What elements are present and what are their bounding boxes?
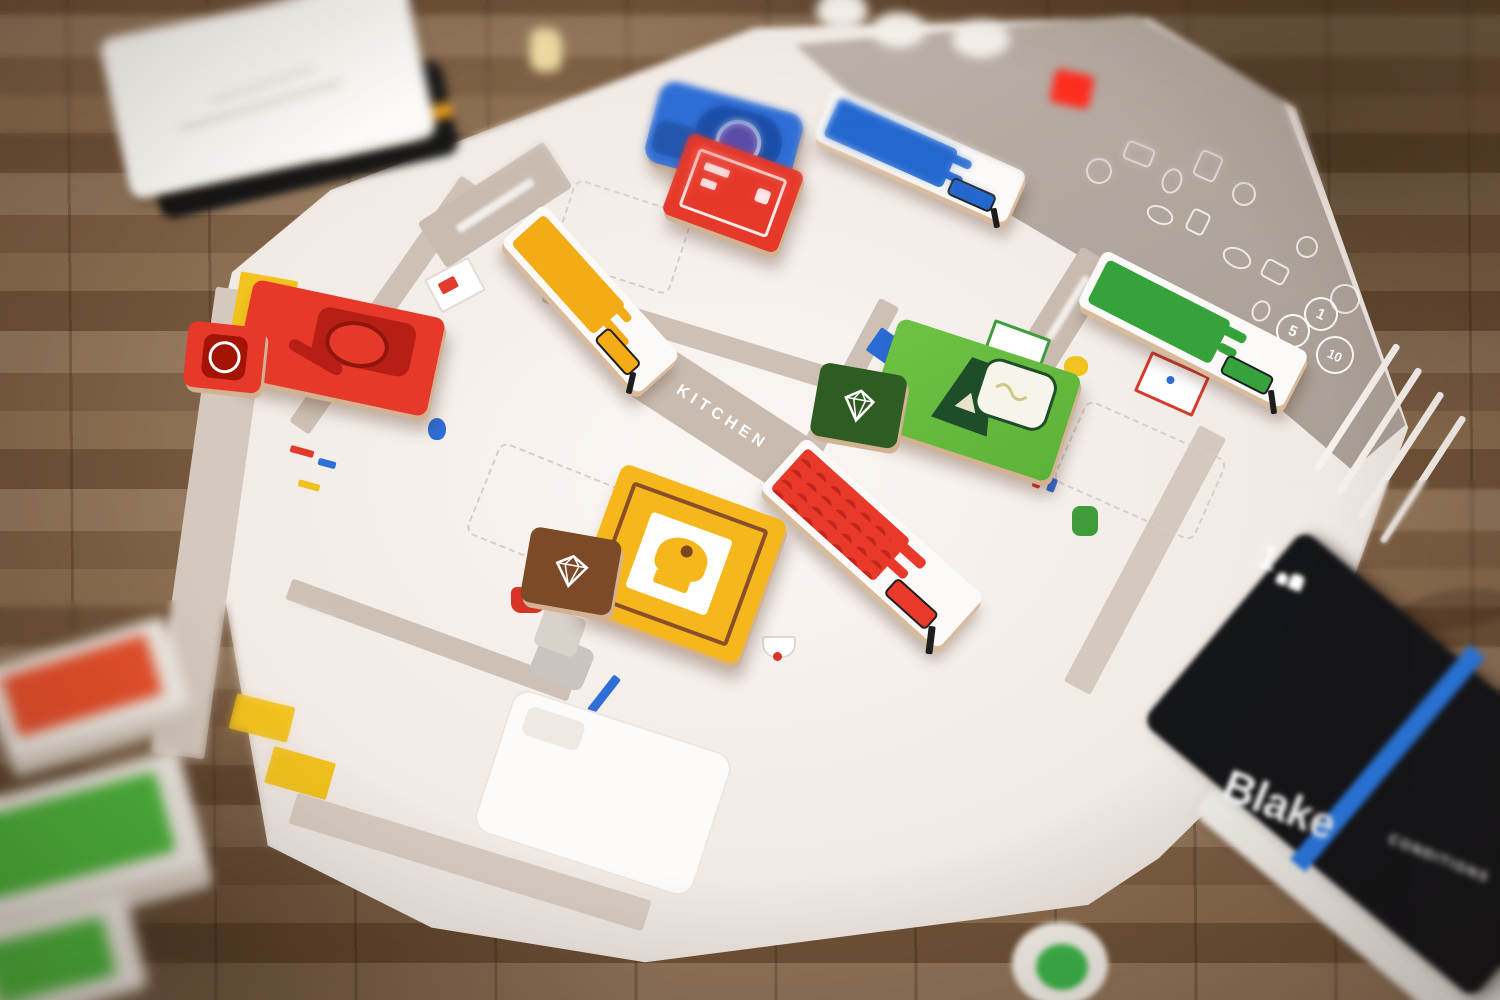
yellow-hanging-style-tab	[519, 526, 623, 617]
score-value-5: 5	[1286, 322, 1301, 341]
print-bath-plant	[1072, 506, 1098, 536]
round-token-green[interactable]	[1012, 922, 1108, 1000]
score-value-1: 1	[1314, 305, 1329, 324]
green-lamp-style-tab	[809, 362, 909, 450]
round-token[interactable]	[952, 20, 1010, 58]
tabletop-photo: { "game": { "board": { "rooms": { "kitch…	[0, 0, 1500, 1000]
print-pendant-lamp	[762, 636, 796, 658]
gem-icon	[547, 549, 595, 594]
hanging-frame-art	[678, 148, 788, 238]
red-curio-style-tab	[182, 320, 266, 394]
print-blue-onion	[428, 418, 446, 440]
players-icon	[1275, 567, 1306, 592]
record-icon	[207, 340, 242, 375]
conditions-label-text: CONDITIONS	[1386, 830, 1492, 885]
round-token[interactable]	[872, 12, 926, 48]
score-value-10: 10	[1325, 345, 1344, 365]
cream-token[interactable]	[530, 28, 562, 72]
gem-icon	[836, 384, 882, 426]
conditions-section-label: CONDITIONS	[1386, 830, 1492, 885]
